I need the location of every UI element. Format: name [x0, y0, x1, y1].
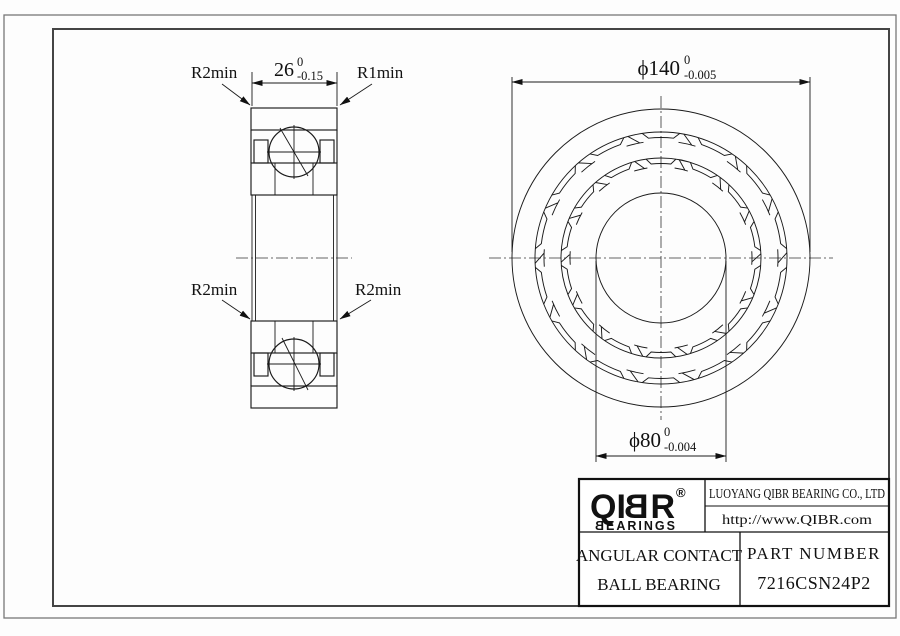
qibr-logo: QI B R ® B EARINGS: [590, 485, 686, 533]
product-line2: BALL BEARING: [597, 575, 721, 594]
part-number-label: PART NUMBER: [747, 544, 881, 563]
company-website: http://www.QIBR.com: [722, 512, 873, 527]
registered-mark: ®: [676, 485, 686, 500]
od-dim-tol-upper: 0: [684, 53, 690, 67]
product-line1: ANGULAR CONTACT: [576, 546, 743, 565]
width-dim-tol-lower: -0.15: [297, 69, 323, 83]
part-number-value: 7216CSN24P2: [757, 573, 871, 593]
section-bottom-half: [251, 321, 337, 408]
cage-section-left: [254, 353, 268, 376]
radius-label-bottom-left: R2min: [191, 280, 250, 319]
section-top-half: [251, 108, 337, 195]
cage-section-right: [320, 353, 334, 376]
front-view: ϕ140 0 -0.005 ϕ80 0 -0.004: [489, 53, 833, 462]
radius-label-top-right: R1min: [340, 63, 404, 105]
od-dim-tol-lower: -0.005: [684, 68, 716, 82]
logo-sub-mirrored-b: B: [593, 519, 604, 533]
leader-line: [340, 300, 371, 319]
section-view: 26 0 -0.15 R2min R1min R2min R2min: [191, 55, 404, 408]
bore-dim-tol-lower: -0.004: [664, 440, 697, 454]
radius-label-top-left: R2min: [191, 63, 250, 105]
company-name: LUOYANG QIBR BEARING CO., LTD: [709, 486, 885, 501]
title-block: QI B R ® B EARINGS LUOYANG QIBR BEARING …: [576, 479, 889, 606]
logo-sub-text: EARINGS: [606, 519, 677, 533]
drawing-canvas: 26 0 -0.15 R2min R1min R2min R2min: [0, 0, 900, 636]
r2min-top-left-text: R2min: [191, 63, 238, 82]
r2min-bottom-right-text: R2min: [355, 280, 402, 299]
bore-dim-tol-upper: 0: [664, 425, 670, 439]
width-dim-tol-upper: 0: [297, 55, 303, 69]
cage-section-right: [320, 140, 334, 163]
cage-section-left: [254, 140, 268, 163]
leader-line: [222, 84, 250, 105]
width-dimension: 26 0 -0.15: [252, 55, 337, 106]
bearing-drawing-sheet: 26 0 -0.15 R2min R1min R2min R2min: [0, 0, 900, 636]
leader-line: [340, 84, 372, 105]
r2min-bottom-left-text: R2min: [191, 280, 238, 299]
bore-dim-value: ϕ80: [629, 428, 661, 452]
leader-line: [222, 300, 250, 319]
od-dim-value: ϕ140: [637, 56, 680, 80]
width-dim-value: 26: [274, 59, 294, 81]
r1min-top-right-text: R1min: [357, 63, 404, 82]
radius-label-bottom-right: R2min: [340, 280, 402, 319]
